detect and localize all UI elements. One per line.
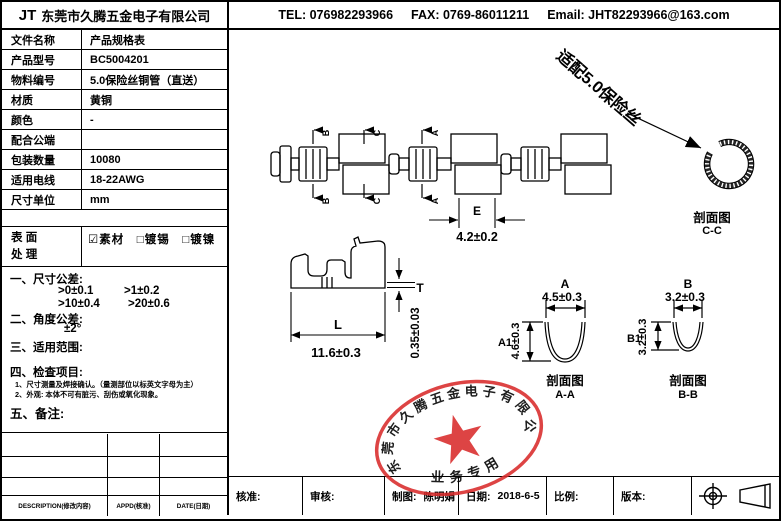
- stamp-caption-text: 业务专用: [427, 451, 508, 493]
- section-aa-width-value: 4.5±0.3: [542, 290, 582, 304]
- fax-text: FAX: 0769-86011211: [411, 8, 529, 22]
- row-label: 包装数量: [2, 150, 82, 169]
- row-value: 产品规格表: [82, 30, 227, 49]
- projection-symbol-cell: [692, 477, 779, 515]
- check-item: 1、尺寸测量及焊接确认。（量测部位以标英文字母为主）: [15, 380, 198, 390]
- revision-table: DESCRIPTION(修改内容) APPD(核准) DATE(日期): [2, 434, 227, 516]
- company-stamp: 东莞市久腾五金电子有限公司 业务专用: [354, 368, 564, 508]
- row-value: 18-22AWG: [82, 170, 227, 189]
- check-item: 2、外观: 本体不可有脏污、刮伤或氧化现象。: [15, 390, 162, 400]
- version-cell: 版本:: [614, 477, 692, 515]
- spec-sheet: JT 东莞市久腾五金电子有限公司 TEL: 076982293966 FAX: …: [0, 0, 781, 521]
- header-row: JT 东莞市久腾五金电子有限公司 TEL: 076982293966 FAX: …: [2, 2, 779, 30]
- row-label: 适用电线: [2, 170, 82, 189]
- angle-tolerance: ±2°: [64, 323, 81, 335]
- revision-header-appd: APPD(核准): [108, 496, 160, 516]
- table-row: 物料编号5.0保险丝铜管（直送）: [2, 70, 227, 90]
- fit-note-text: 适配5.0保险丝: [553, 45, 646, 129]
- contact-cell: TEL: 076982293966 FAX: 0769-86011211 Ema…: [229, 2, 779, 28]
- review-label: 审核:: [310, 489, 335, 504]
- note-heading: 三、适用范围:: [10, 339, 83, 355]
- row-label: 尺寸单位: [2, 190, 82, 209]
- table-row: 颜色-: [2, 110, 227, 130]
- revision-header-date: DATE(日期): [160, 496, 227, 516]
- surface-treatment-row: 表 面 处 理 ☑素材 □镀锡 □镀镍: [2, 227, 227, 267]
- section-mark-a: A: [430, 197, 440, 204]
- fit-note-arrow: [627, 113, 701, 148]
- table-row: 包装数量10080: [2, 150, 227, 170]
- tolerance-value: >0±0.1: [58, 285, 93, 297]
- row-label: 产品型号: [2, 50, 82, 69]
- section-aa-width-label: A: [561, 277, 570, 291]
- approve-cell: 核准:: [229, 477, 303, 515]
- table-row: 尺寸单位mm: [2, 190, 227, 210]
- section-bb-name: B-B: [678, 389, 698, 401]
- section-bb-shape: [651, 300, 703, 351]
- company-cell: JT 东莞市久腾五金电子有限公司: [2, 2, 229, 28]
- surface-label-line2: 处 理: [11, 247, 81, 264]
- fuse-ring-section: [704, 139, 753, 188]
- row-value: 5.0保险丝铜管（直送）: [82, 70, 227, 89]
- revision-cell: [2, 434, 108, 457]
- dim-t-lines: [387, 258, 415, 312]
- section-cut-marks: [313, 130, 432, 198]
- note-heading: 四、检查项目:: [10, 364, 83, 380]
- tolerance-value: >20±0.6: [128, 298, 170, 310]
- table-row: 材质黄铜: [2, 90, 227, 110]
- table-row: 配合公端: [2, 130, 227, 150]
- row-label: 配合公端: [2, 130, 82, 149]
- section-mark-a: A: [430, 129, 440, 136]
- revision-cell: [2, 457, 108, 478]
- dim-t-label: T: [416, 281, 424, 295]
- revision-cell: [108, 478, 160, 496]
- table-row: 文件名称产品规格表: [2, 30, 227, 50]
- section-cc-name: C-C: [702, 225, 722, 237]
- revision-header-description: DESCRIPTION(修改内容): [2, 496, 108, 516]
- section-mark-c: C: [372, 197, 382, 204]
- row-value: mm: [82, 190, 227, 209]
- section-aa-shape: [522, 300, 585, 362]
- empty-row: [2, 210, 227, 227]
- section-cc-title: 剖面图: [693, 210, 731, 225]
- section-bb-height-value: 3.2±0.3: [637, 319, 649, 356]
- revision-cell: [160, 478, 227, 496]
- tolerance-value: >10±0.4: [58, 298, 100, 310]
- row-label: 颜色: [2, 110, 82, 129]
- row-value: 10080: [82, 150, 227, 169]
- section-aa-height-value: 4.6±0.3: [510, 323, 522, 360]
- dim-e-label: E: [473, 204, 481, 218]
- surface-label: 表 面 处 理: [2, 227, 82, 266]
- profile-view: [291, 237, 385, 288]
- note-heading: 五、备注:: [10, 403, 64, 422]
- spec-table: 文件名称产品规格表 产品型号BC5004201 物料编号5.0保险丝铜管（直送）…: [2, 30, 227, 210]
- revision-cell: [108, 457, 160, 478]
- section-bb-width-value: 3.2±0.3: [665, 290, 705, 304]
- row-value: -: [82, 110, 227, 129]
- stamp-star-icon: [429, 408, 489, 466]
- surface-options: ☑素材 □镀锡 □镀镍: [82, 227, 227, 266]
- table-row: 产品型号BC5004201: [2, 50, 227, 70]
- dim-l-value: 11.6±0.3: [311, 345, 361, 360]
- row-label: 文件名称: [2, 30, 82, 49]
- dim-l-label: L: [334, 317, 342, 332]
- company-name: 东莞市久腾五金电子有限公司: [41, 6, 210, 25]
- approve-label: 核准:: [236, 489, 261, 504]
- tolerance-notes: 一、尺寸公差: >0±0.1 >1±0.2 >10±0.4 >20±0.6 二、…: [2, 267, 227, 433]
- section-bb-width-label: B: [684, 277, 693, 291]
- table-row: 适用电线18-22AWG: [2, 170, 227, 190]
- section-mark-c: C: [372, 129, 382, 136]
- company-logo: JT: [19, 7, 37, 24]
- dim-t-value: 0.35±0.03: [410, 307, 422, 358]
- revision-cell: [160, 457, 227, 478]
- row-value: [82, 130, 227, 149]
- row-label: 材质: [2, 90, 82, 109]
- section-mark-b: B: [321, 129, 331, 136]
- projection-symbol-icon: [694, 480, 778, 512]
- dim-e-value: 4.2±0.2: [456, 230, 498, 244]
- email-text: Email: JHT82293966@163.com: [547, 8, 729, 22]
- revision-cell: [160, 434, 227, 457]
- section-bb-title: 剖面图: [669, 373, 707, 388]
- tolerance-value: >1±0.2: [124, 285, 159, 297]
- terminal-strip-view: [271, 134, 611, 194]
- section-mark-b: B: [321, 197, 331, 204]
- revision-cell: [108, 434, 160, 457]
- version-label: 版本:: [621, 489, 646, 504]
- tel-text: TEL: 076982293966: [278, 8, 393, 22]
- revision-cell: [2, 478, 108, 496]
- surface-label-line1: 表 面: [11, 230, 81, 247]
- row-value: BC5004201: [82, 50, 227, 69]
- row-label: 物料编号: [2, 70, 82, 89]
- row-value: 黄铜: [82, 90, 227, 109]
